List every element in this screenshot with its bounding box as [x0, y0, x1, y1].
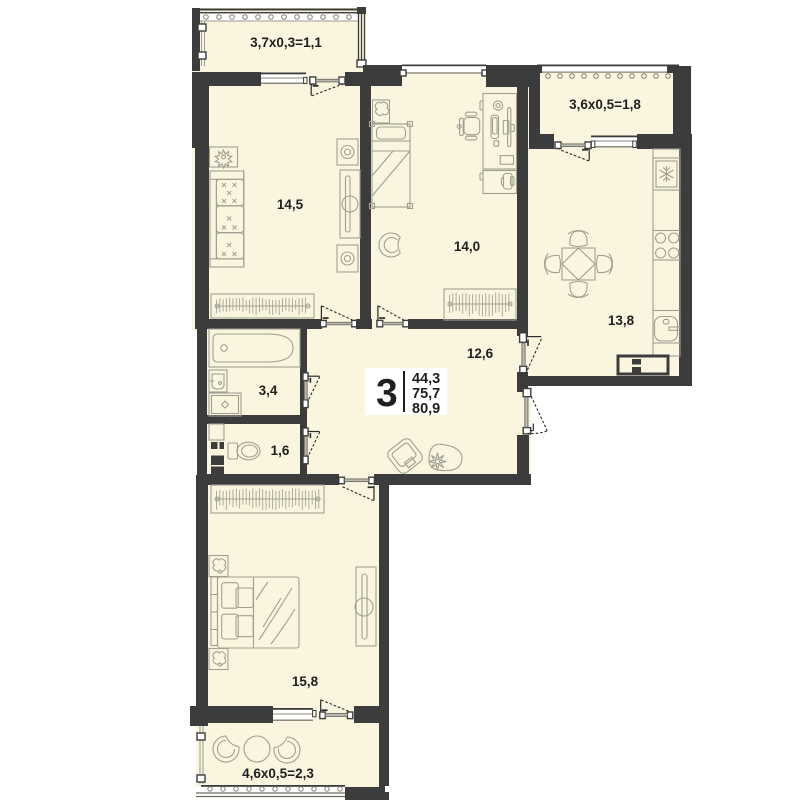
svg-text:14,0: 14,0 — [454, 239, 480, 254]
svg-text:75,7: 75,7 — [412, 386, 440, 402]
svg-text:3: 3 — [376, 372, 398, 415]
svg-text:3,4: 3,4 — [259, 383, 278, 398]
svg-text:3,6х0,5=1,8: 3,6х0,5=1,8 — [569, 97, 641, 112]
svg-text:15,8: 15,8 — [292, 674, 319, 689]
svg-text:4,6х0,5=2,3: 4,6х0,5=2,3 — [242, 766, 314, 781]
svg-text:14,5: 14,5 — [277, 197, 304, 212]
svg-text:80,9: 80,9 — [412, 401, 440, 417]
svg-text:3,7х0,3=1,1: 3,7х0,3=1,1 — [250, 35, 322, 50]
svg-text:1,6: 1,6 — [271, 443, 290, 458]
svg-text:13,8: 13,8 — [608, 313, 635, 328]
svg-text:12,6: 12,6 — [467, 346, 494, 361]
svg-text:44,3: 44,3 — [412, 371, 440, 387]
